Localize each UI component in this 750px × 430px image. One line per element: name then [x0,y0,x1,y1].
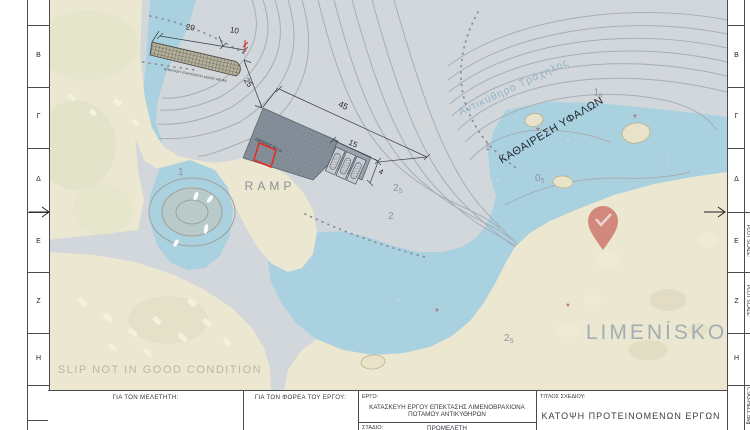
plot-scale-label: PLOT SCALE: [745,283,750,319]
grid-letter: Δ [28,176,49,183]
grid-letter: Γ [28,113,49,120]
plot-scale-label: PLOT SCALE: [745,223,750,259]
stage-row: ΣΤΑΔΙΟ: ΠΡΟΜΕΛΕΤΗ [358,422,536,430]
sheet-title: ΚΑΤΟΨΗ ΠΡΟΤΕΙΝΟΜΕΝΩΝ ΕΡΓΩΝ [536,411,726,421]
file-path-label: C:\A3-HELL.dwg [745,387,750,423]
rock-symbol: * [566,302,570,313]
title-block-sheet-cell: ΤΙΤΛΟΣ ΣΧΕΔΙΟΥ: ΚΑΤΟΨΗ ΠΡΟΤΕΙΝΟΜΕΝΩΝ ΕΡΓ… [536,391,726,430]
grid-letter: E [728,238,745,245]
center-arrow-left [28,205,52,219]
designer-label: ΓΙΑ ΤΟΝ ΜΕΛΕΤΗΤΗ: [48,394,243,401]
project-title: ΚΑΤΑΣΚΕΥΗ ΕΡΓΟΥ ΕΠΕΚΤΑΣΗΣ ΛΙΜΕΝΟΒΡΑΧΙΟΝΑ… [358,404,536,418]
depth-label: 1 [178,167,184,178]
title-block-project-cell: ΕΡΓΟ: ΚΑΤΑΣΚΕΥΗ ΕΡΓΟΥ ΕΠΕΚΤΑΣΗΣ ΛΙΜΕΝΟΒΡ… [358,391,537,430]
grid-letter: Z [728,298,745,305]
depth-label: 1 [485,142,491,153]
center-arrow-right [703,205,727,219]
grid-letter: Z [28,298,49,305]
grid-letter: B [28,52,49,59]
limeniskos-label: LIMENÍSKOS [586,321,727,344]
map-viewport: * * * * 15 1 05 25 2 1 [48,0,727,390]
stage-value: ΠΡΟΜΕΛΕΤΗ [358,425,536,430]
plot-scale-strip: PLOT SCALE: PLOT SCALE: C:\A3-HELL.dwg [744,0,750,430]
title-block: ΓΙΑ ΤΟΝ ΜΕΛΕΤΗΤΗ: ΓΙΑ ΤΟΝ ΦΟΡΕΑ ΤΟΥ ΕΡΓΟ… [48,390,727,430]
sheet-title-label: ΤΙΤΛΟΣ ΣΧΕΔΙΟΥ: [540,394,586,400]
project-label: ΕΡΓΟ: [362,394,378,400]
grid-letter: H [28,355,49,362]
ramp-label: RAMP [245,179,296,193]
grid-letter: B [728,52,745,59]
depth-label: 2 [388,211,394,222]
title-block-designer-cell: ΓΙΑ ΤΟΝ ΜΕΛΕΤΗΤΗ: [48,391,244,430]
title-block-agency-cell: ΓΙΑ ΤΟΝ ΦΟΡΕΑ ΤΟΥ ΕΡΓΟΥ: [243,391,359,430]
slip-note-label: SLIP NOT IN GOOD CONDITION [58,364,262,376]
grid-letter: Δ [728,176,745,183]
grid-letter: H [728,355,745,362]
rock-symbol: * [435,307,439,318]
harbor-plan-svg: * * * * 15 1 05 25 2 1 [48,0,727,390]
grid-letter: E [28,238,49,245]
rock-symbol: * [633,113,637,124]
grid-letter: Γ [728,113,745,120]
drawing-sheet: * * * * 15 1 05 25 2 1 [0,0,750,430]
agency-label: ΓΙΑ ΤΟΝ ΦΟΡΕΑ ΤΟΥ ΕΡΓΟΥ: [243,394,358,401]
